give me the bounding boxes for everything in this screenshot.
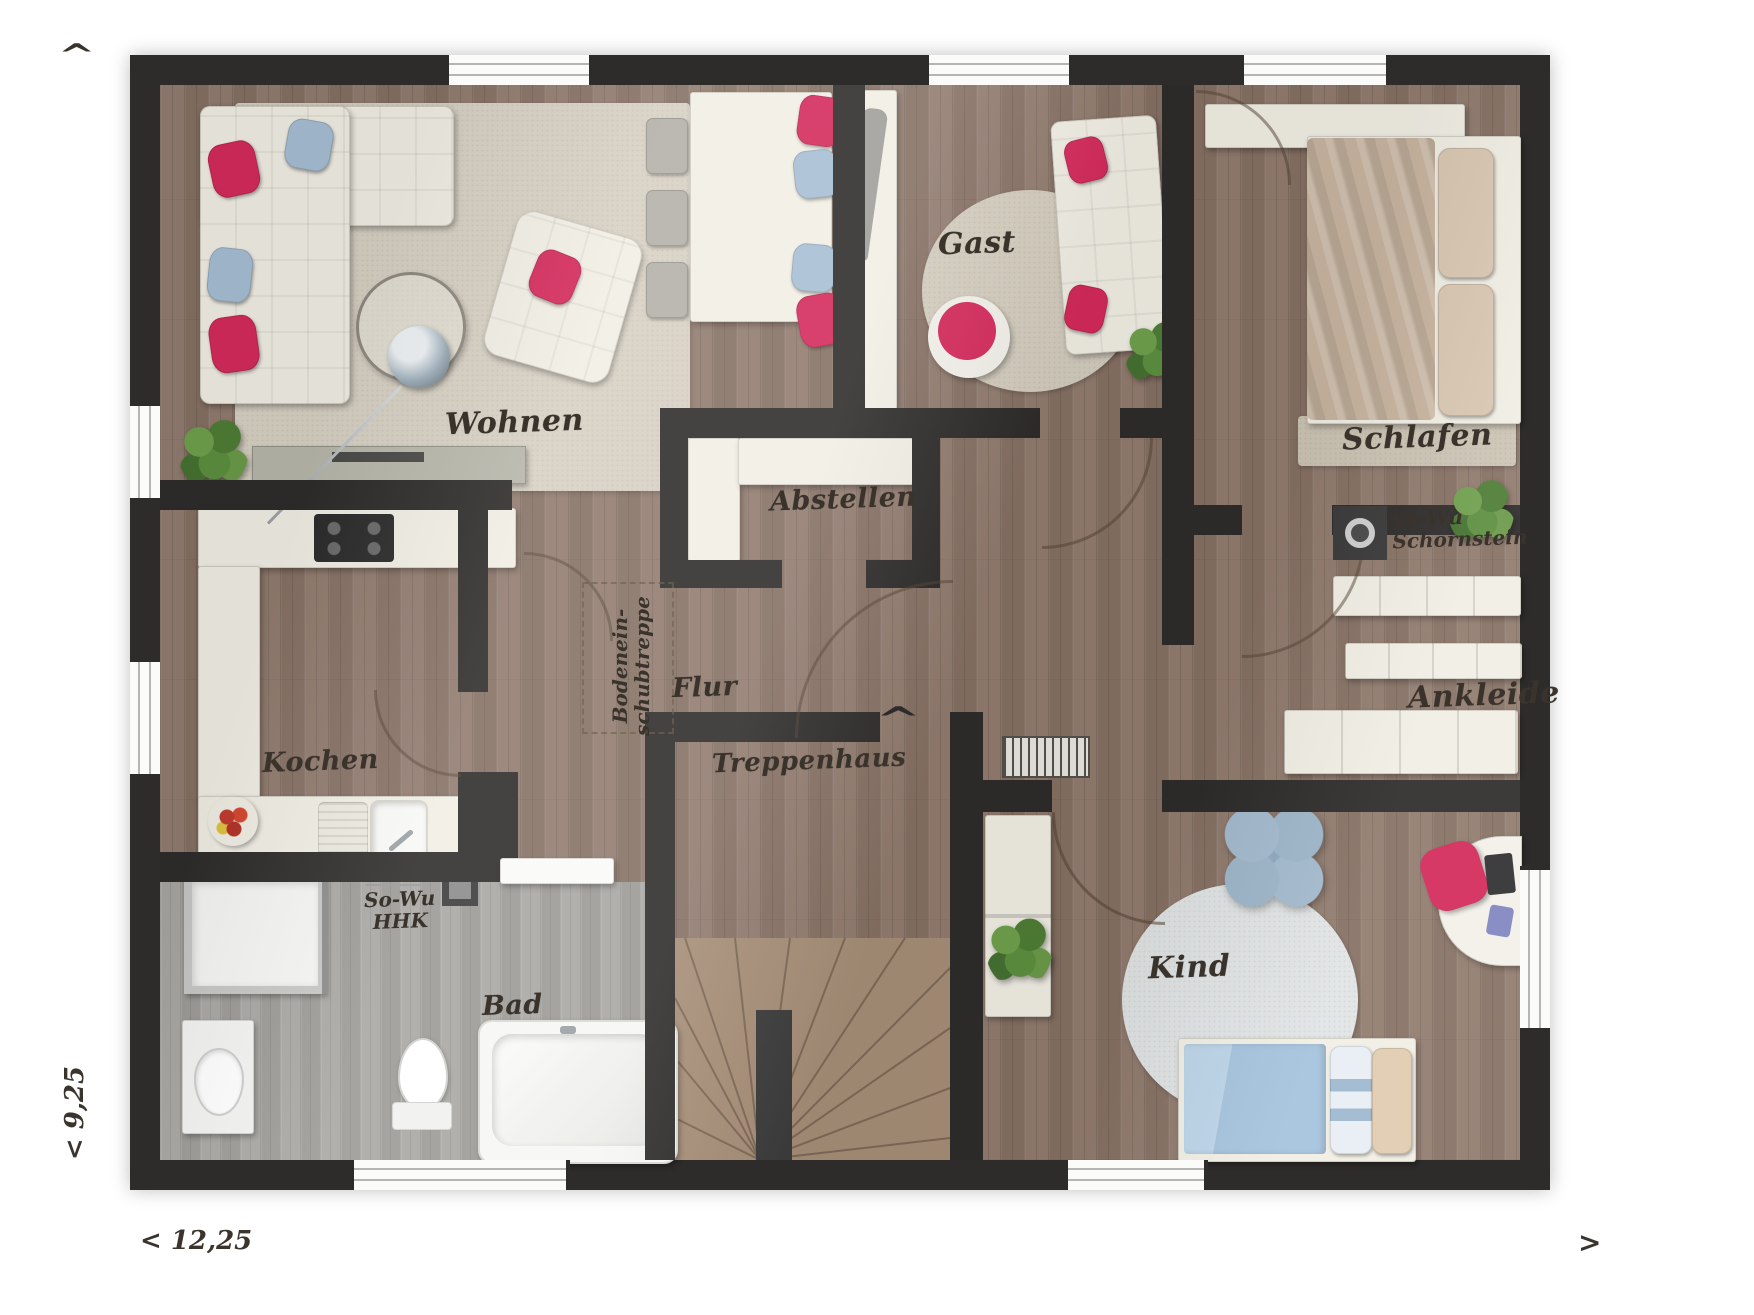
room-label-flur: Flur <box>671 671 737 704</box>
window-bad-bottom <box>350 1160 570 1190</box>
bathtub-basin <box>492 1034 660 1146</box>
dimension-height-label: < 9,25 <box>60 1043 96 1183</box>
wall-kind-top-left <box>950 780 1052 812</box>
bed-pillow <box>1438 284 1494 416</box>
dimension-arrow-up: ^ <box>58 38 96 73</box>
annotation-bodentreppe-line1: Bodenein- <box>609 581 631 751</box>
wardrobe-bottom <box>1284 710 1518 774</box>
wall-treppenhaus-left <box>645 712 675 1160</box>
wall-mid-horizontal-right <box>1120 408 1162 438</box>
laptop <box>1484 853 1516 896</box>
kind-bed-pillow-beige <box>1372 1048 1412 1154</box>
window-wohnen-top <box>445 55 593 85</box>
bed-duvet <box>1307 138 1435 420</box>
shower-tray <box>192 882 318 986</box>
room-label-gast: Gast <box>937 225 1016 263</box>
bathtub-faucet <box>560 1026 576 1034</box>
dining-chair <box>646 118 688 174</box>
winder-staircase <box>675 938 950 1160</box>
floorplan-canvas: Wohnen Gast Schlafen So-Wu Schornstein A… <box>0 0 1754 1315</box>
wall-kueche-bad <box>160 852 458 882</box>
annotation-hhk-line1: So-Wu <box>357 887 442 912</box>
annotation-schornstein-line2: Schornstein <box>1392 526 1528 553</box>
window-kind-right <box>1520 866 1550 1032</box>
desk-accessory <box>1486 904 1515 938</box>
wall-kind-ankleide-bottom <box>1162 780 1520 812</box>
arc-lamp-shade <box>388 326 450 388</box>
kitchen-counter-left <box>198 566 260 800</box>
fruit-bowl <box>208 796 258 846</box>
wall-mid-horizontal <box>660 408 1040 438</box>
window-wohnen-left <box>130 402 160 502</box>
dimension-arrow-right: > <box>1578 1226 1601 1259</box>
wall-schlafen-bottom-left <box>1194 505 1242 535</box>
window-gast-top <box>925 55 1073 85</box>
kind-bed-pillow-striped <box>1330 1046 1372 1154</box>
kind-bed-mattress <box>1184 1044 1326 1154</box>
tub-chair-cushion <box>938 302 996 360</box>
room-label-ankleide: Ankleide <box>1407 675 1560 715</box>
abstellen-shelf-top <box>738 438 914 485</box>
dimension-width-label: < 12,25 <box>140 1226 252 1256</box>
room-label-kochen: Kochen <box>261 744 379 779</box>
bed-pillow <box>1438 148 1494 278</box>
pillow-red <box>206 313 261 375</box>
dining-chair <box>646 262 688 318</box>
chimney-flue <box>1345 518 1375 548</box>
abstellen-shelf-left <box>688 438 740 562</box>
shower-glass <box>322 874 328 994</box>
room-label-schlafen: Schlafen <box>1341 417 1493 457</box>
window-kueche-left <box>130 658 160 778</box>
window-treppenhaus-bottom <box>1064 1160 1208 1190</box>
room-label-bad: Bad <box>481 989 543 1022</box>
annotation-bodentreppe: Bodenein- schubtreppe <box>609 581 681 751</box>
stair-newel <box>756 1010 792 1160</box>
annotation-hhk: So-Wu HHK <box>357 887 442 934</box>
wardrobe-middle <box>1345 643 1522 679</box>
wardrobe-top <box>1333 576 1521 616</box>
chair-cushion-blue <box>790 242 838 294</box>
cooktop <box>314 514 394 562</box>
room-label-wohnen: Wohnen <box>444 403 584 443</box>
plant <box>178 416 248 490</box>
stair-up-arrow: ^ <box>875 700 921 740</box>
wall-flur-ankleide <box>1162 505 1194 645</box>
door-leaf-bad <box>500 858 614 884</box>
window-schlafen-top <box>1240 55 1390 85</box>
soundbar <box>332 452 424 462</box>
annotation-hhk-line2: HHK <box>358 909 443 934</box>
annotation-schornstein: So-Wu Schornstein <box>1391 504 1527 553</box>
toilet-tank <box>392 1102 452 1130</box>
wall-dining-gast <box>833 85 865 415</box>
toilet-bowl <box>398 1038 448 1110</box>
room-label-abstellen: Abstellen <box>770 481 918 517</box>
room-label-kind: Kind <box>1147 949 1230 987</box>
pillow-blue <box>205 246 254 304</box>
wall-kueche-flur-upper <box>458 510 488 692</box>
wall-wohnen-kueche <box>160 480 512 510</box>
flower-cushion <box>1224 806 1324 908</box>
annotation-bodentreppe-line2: schubtreppe <box>631 581 653 751</box>
wall-gast-schlafen <box>1162 85 1194 505</box>
dining-chair <box>646 190 688 246</box>
radiator <box>1002 736 1090 778</box>
plant <box>986 914 1052 988</box>
